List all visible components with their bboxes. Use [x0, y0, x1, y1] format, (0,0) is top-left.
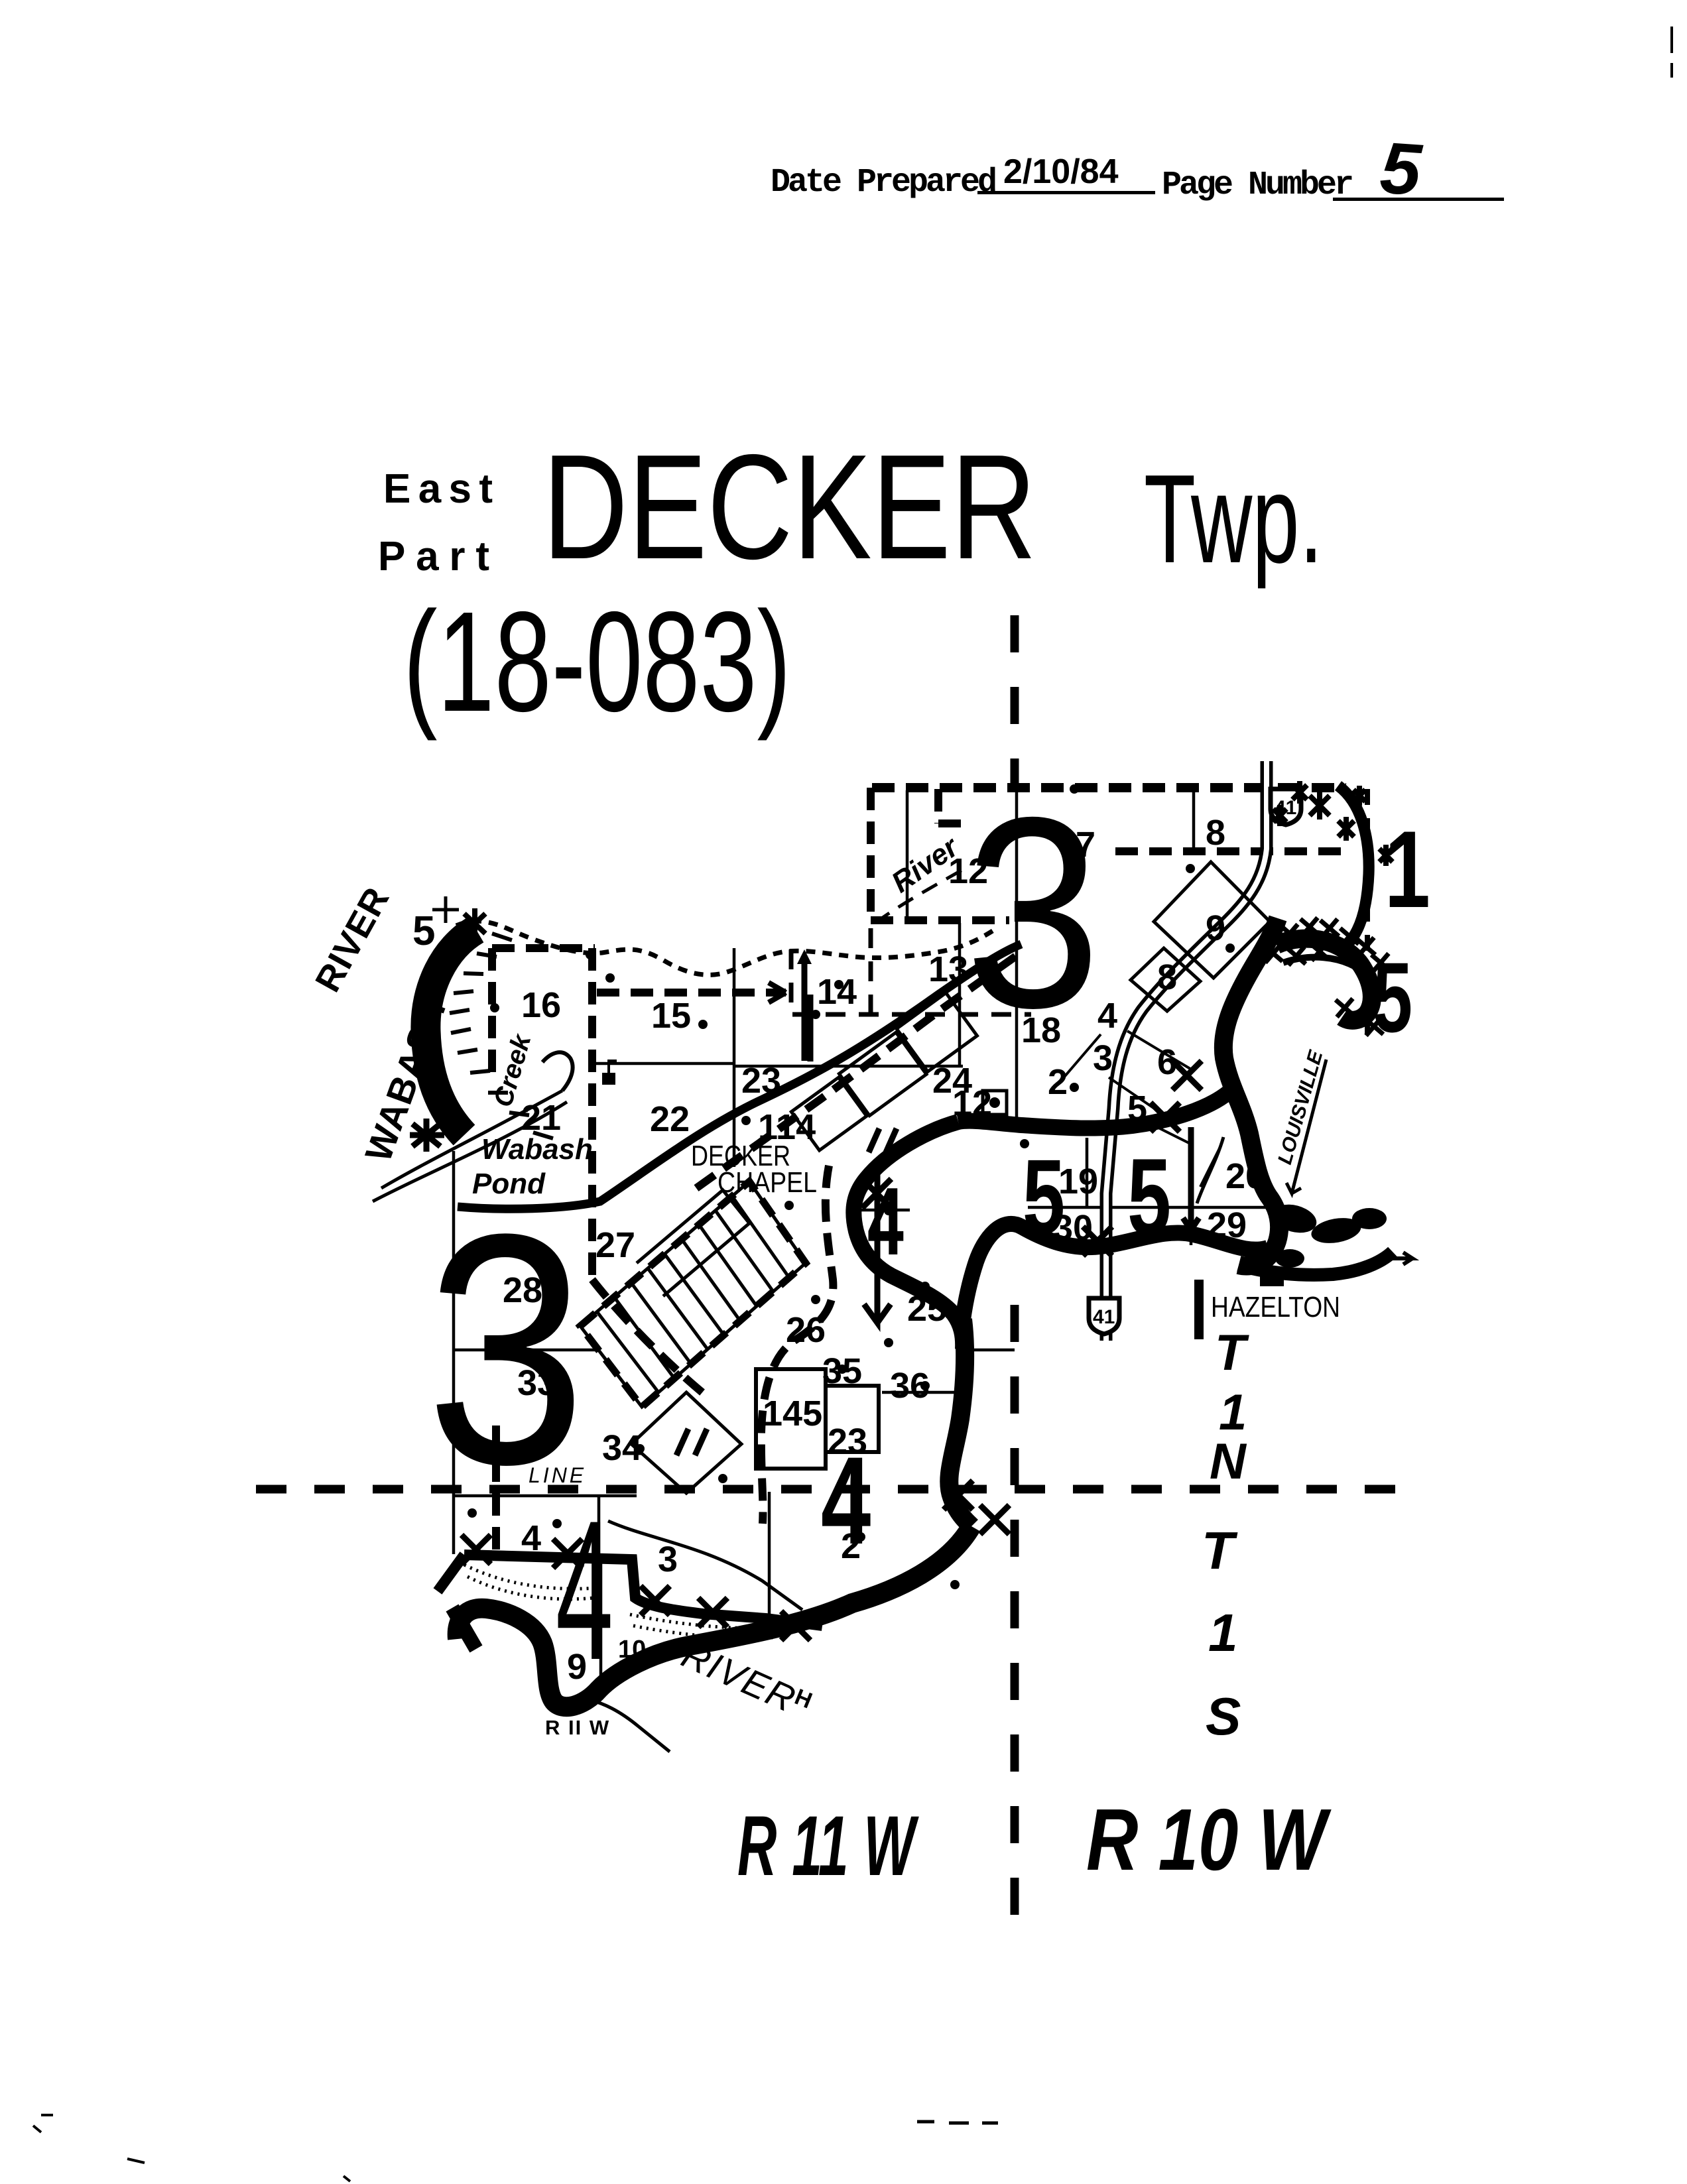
- svg-text:27: 27: [595, 1225, 635, 1265]
- svg-text:Part: Part: [378, 534, 489, 579]
- svg-text:LOUISVILLE: LOUISVILLE: [1274, 1048, 1328, 1167]
- svg-text:14: 14: [817, 972, 857, 1012]
- svg-text:23: 23: [828, 1422, 867, 1461]
- svg-text:R 11 W: R 11 W: [737, 1799, 919, 1894]
- svg-text:29: 29: [1207, 1205, 1247, 1245]
- svg-text:R II W: R II W: [545, 1716, 610, 1739]
- svg-text:4: 4: [867, 1168, 904, 1275]
- svg-text:5: 5: [1373, 942, 1412, 1054]
- svg-text:Pond: Pond: [472, 1168, 546, 1200]
- svg-text:Page Number: Page Number: [1162, 166, 1352, 204]
- svg-text:21: 21: [521, 1098, 561, 1138]
- svg-text:8: 8: [1157, 957, 1177, 997]
- svg-text:S: S: [1206, 1687, 1241, 1746]
- svg-text:20: 20: [1225, 1156, 1265, 1196]
- svg-text:145: 145: [763, 1394, 822, 1433]
- svg-text:5: 5: [1127, 1136, 1171, 1258]
- svg-text:RIVER: RIVER: [308, 880, 397, 999]
- svg-text:16: 16: [521, 985, 561, 1025]
- svg-text:1: 1: [1219, 1384, 1247, 1441]
- svg-text:9: 9: [1206, 908, 1225, 948]
- svg-text:13: 13: [928, 949, 968, 989]
- svg-text:6: 6: [1157, 1042, 1177, 1082]
- svg-text:Twp.: Twp.: [1144, 449, 1323, 589]
- svg-text:25: 25: [907, 1289, 947, 1329]
- svg-text:26: 26: [786, 1310, 826, 1350]
- svg-text:N: N: [1210, 1433, 1247, 1490]
- svg-text:2/10/84: 2/10/84: [1003, 152, 1119, 191]
- svg-text:4: 4: [521, 1518, 541, 1558]
- svg-text:1: 1: [1385, 808, 1430, 930]
- svg-text:5: 5: [412, 908, 435, 954]
- svg-text:R 10 W: R 10 W: [1086, 1791, 1332, 1888]
- svg-text:(18-083): (18-083): [403, 581, 791, 741]
- svg-text:3: 3: [1093, 1038, 1113, 1078]
- svg-text:Date Prepared: Date Prepared: [771, 164, 995, 202]
- svg-text:T: T: [1202, 1521, 1238, 1580]
- svg-text:30: 30: [1053, 1208, 1093, 1248]
- svg-text:4: 4: [1097, 996, 1117, 1036]
- svg-text:LINE: LINE: [529, 1463, 586, 1487]
- svg-text:3: 3: [658, 1540, 678, 1579]
- svg-text:Wabash: Wabash: [481, 1133, 593, 1166]
- svg-text:5: 5: [1377, 127, 1424, 211]
- svg-text:5: 5: [1127, 1089, 1147, 1128]
- svg-text:I N: I N: [416, 1016, 438, 1040]
- svg-text:2: 2: [841, 1526, 861, 1566]
- svg-text:10: 10: [618, 1636, 646, 1664]
- svg-text:15: 15: [651, 996, 691, 1036]
- svg-text:DECKER: DECKER: [542, 423, 1036, 590]
- svg-text:RIVER: RIVER: [676, 1633, 802, 1720]
- svg-text:28: 28: [503, 1270, 542, 1310]
- svg-text:41: 41: [1093, 1306, 1115, 1328]
- svg-text:9: 9: [567, 1647, 587, 1687]
- svg-text:8: 8: [1206, 813, 1225, 853]
- svg-text:HAZELTON: HAZELTON: [1211, 1291, 1340, 1323]
- svg-text:T: T: [1215, 1325, 1249, 1381]
- svg-text:22: 22: [650, 1099, 690, 1139]
- svg-text:2: 2: [1048, 1062, 1068, 1102]
- svg-text:East: East: [383, 466, 493, 512]
- svg-text:7: 7: [1076, 825, 1095, 865]
- svg-text:CHAPEL: CHAPEL: [718, 1166, 817, 1199]
- svg-text:18: 18: [1021, 1010, 1061, 1050]
- svg-text:23: 23: [741, 1061, 781, 1101]
- svg-text:19: 19: [1058, 1162, 1098, 1201]
- svg-text:1: 1: [1208, 1603, 1238, 1662]
